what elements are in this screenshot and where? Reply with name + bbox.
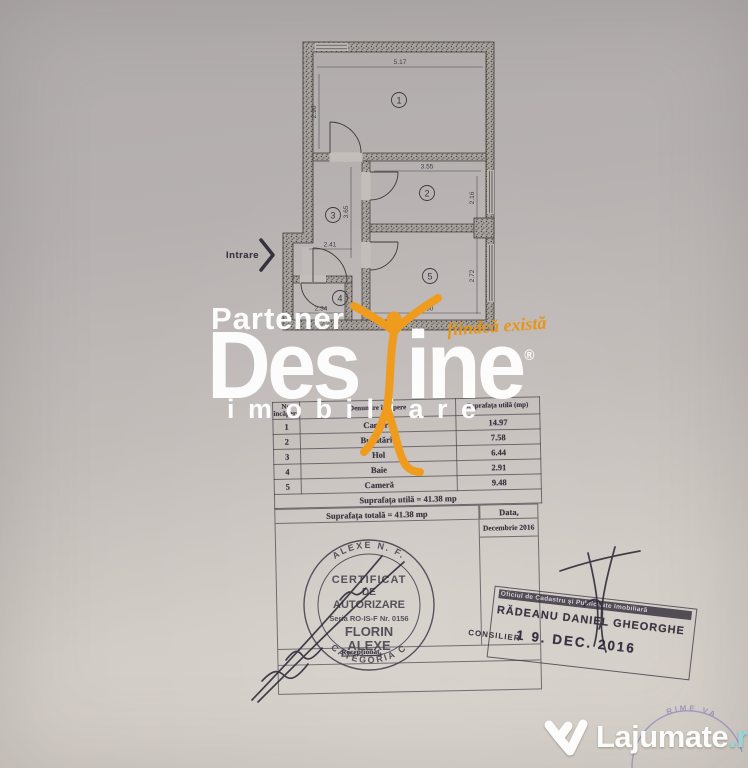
listing-photo: 5.17 2.90 3.55 2.16 3.65 2.41 2.72 3.50 … [0,0,748,768]
date-label-cell: Data, [479,503,538,519]
registered-trademark: ® [524,347,534,364]
row-nr: 5 [274,479,301,495]
dim-room1-height: 2.90 [311,105,318,118]
dimension-labels: 5.17 2.90 3.55 2.16 3.65 2.41 2.72 3.50 … [311,59,476,313]
entrance-arrow-icon [258,238,278,272]
date-value-cell: Decembrie 2016 [480,518,538,537]
dim-room2-width: 3.55 [421,164,434,171]
certification-stamp: ALEXE N. F. CATEGORIA C CERTIFICAT DE AU… [296,532,442,678]
stamp-line-certificat: CERTIFICAT [332,574,407,586]
row-area: 6.44 [456,444,540,461]
dim-hall-height: 3.65 [343,205,350,218]
stamp-serial: Seria RO-IS-F Nr. 0156 [329,614,408,623]
row-nr: 2 [273,434,300,450]
room-5-number: 5 [427,271,432,281]
room-2-number: 2 [424,188,429,198]
row-area: 2.91 [457,459,541,476]
dim-hall-width: 2.41 [324,242,337,249]
site-brand: Lajumate [596,719,728,754]
dim-room1-width: 5.17 [394,59,407,66]
row-area: 9.48 [457,474,541,491]
site-logo-icon [543,716,589,758]
stamp-arc-top: ALEXE N. F. [330,540,407,561]
dim-room2-height: 2.16 [469,191,476,204]
row-area: 7.58 [456,429,540,446]
room-1-number: 1 [396,95,401,105]
stamp-line-autorizare: AUTORIZARE [333,599,405,611]
site-logo-text: Lajumate.ro [596,719,748,755]
stamp-line-de: DE [362,587,376,598]
stamp-name-first: FLORIN [345,624,393,639]
brand-person-icon [348,292,444,478]
entrance-label: Intrare [226,250,259,261]
walls [283,42,494,330]
stamp-name-last: ALEXE [347,638,391,653]
svg-text:ALEXE N. F.: ALEXE N. F. [330,540,407,561]
room-3-number: 3 [330,210,335,220]
row-nr: 3 [273,449,300,465]
site-tld: .ro [728,719,748,754]
site-logo: Lajumate.ro [543,716,748,758]
row-nr: 4 [274,464,301,480]
dim-room5-height: 2.72 [469,269,476,282]
